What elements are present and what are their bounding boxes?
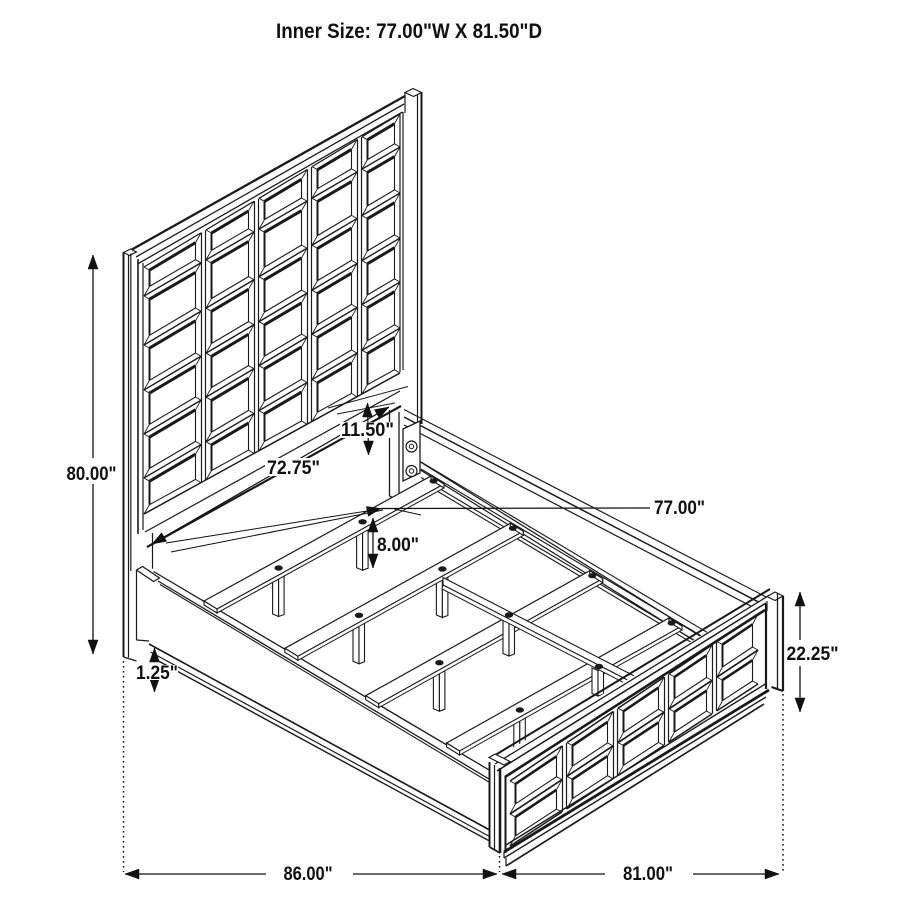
svg-text:1.25": 1.25" <box>136 663 178 684</box>
svg-text:11.50": 11.50" <box>341 420 394 441</box>
svg-text:72.75": 72.75" <box>267 458 320 479</box>
svg-text:81.00": 81.00" <box>623 864 673 885</box>
svg-text:8.00": 8.00" <box>377 535 419 556</box>
svg-text:80.00": 80.00" <box>67 464 117 485</box>
svg-text:Inner Size: 77.00"W X 81.50"D: Inner Size: 77.00"W X 81.50"D <box>276 20 542 43</box>
svg-text:86.00": 86.00" <box>284 864 333 885</box>
svg-text:77.00": 77.00" <box>654 498 705 519</box>
svg-text:22.25": 22.25" <box>787 644 839 665</box>
